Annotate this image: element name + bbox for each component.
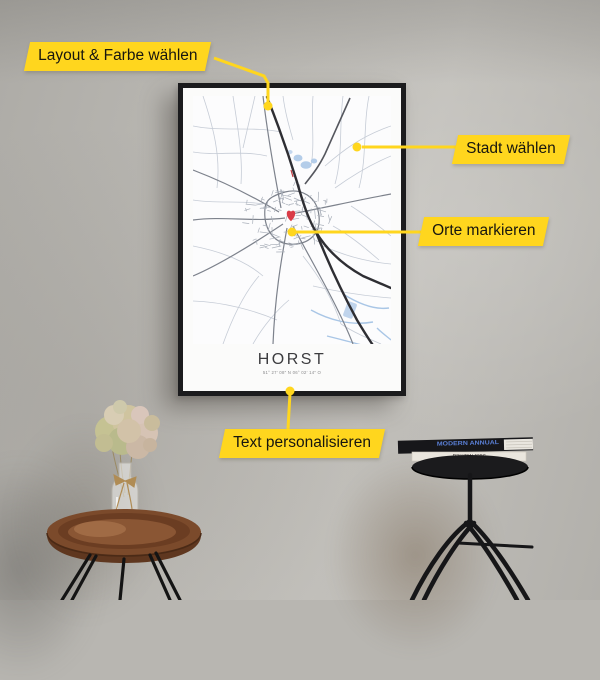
dried-flowers: [95, 400, 160, 459]
callout-stadt-waehlen-label: Stadt wählen: [466, 140, 556, 158]
callout-layout-farbe-label: Layout & Farbe wählen: [38, 47, 197, 65]
poster-title: HORST: [183, 351, 401, 369]
callout-text-personalisieren-label: Text personalisieren: [233, 434, 371, 452]
stool: MODERN ANNUAL Just Married: [370, 425, 570, 600]
poster-coordinates: 51° 27′ 08″ N 06° 02′ 14″ O: [240, 370, 345, 375]
callout-layout-farbe[interactable]: Layout & Farbe wählen: [24, 42, 212, 71]
callout-text-personalisieren[interactable]: Text personalisieren: [219, 429, 385, 458]
side-table: [28, 393, 228, 600]
stool-legs: [412, 475, 532, 600]
map-preview: [193, 96, 391, 344]
table-top: [47, 509, 201, 563]
map-artwork: [193, 96, 391, 344]
callout-orte-markieren[interactable]: Orte markieren: [418, 217, 550, 246]
callout-stadt-waehlen[interactable]: Stadt wählen: [452, 135, 570, 164]
poster-caption: HORST 51° 27′ 08″ N 06° 02′ 14″ O: [183, 351, 401, 380]
book-top: MODERN ANNUAL: [398, 437, 533, 454]
callout-orte-markieren-label: Orte markieren: [432, 222, 535, 240]
poster-frame: HORST 51° 27′ 08″ N 06° 02′ 14″ O: [178, 83, 406, 396]
